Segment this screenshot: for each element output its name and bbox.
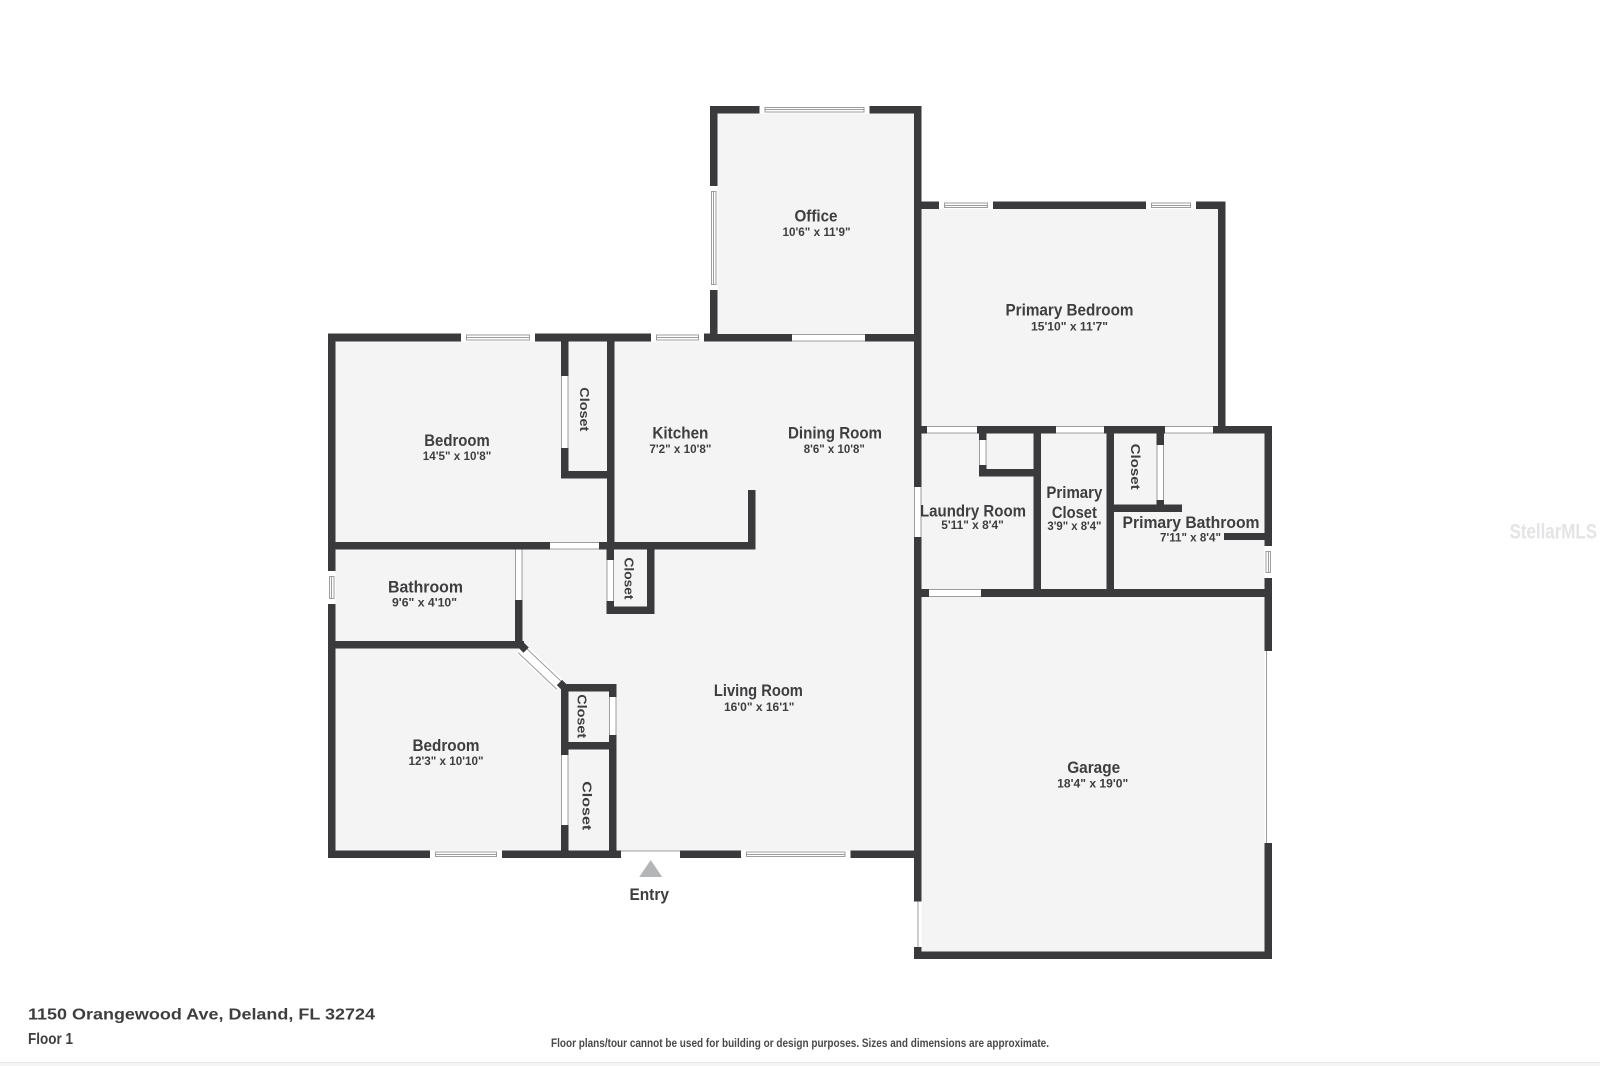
svg-text:14'5" x 10'8": 14'5" x 10'8" — [423, 449, 492, 463]
svg-text:Entry: Entry — [629, 885, 669, 904]
svg-text:1150 Orangewood Ave, Deland, F: 1150 Orangewood Ave, Deland, FL 32724 — [28, 1007, 375, 1024]
svg-text:9'6" x 4'10": 9'6" x 4'10" — [392, 595, 457, 609]
svg-text:3'9" x 8'4": 3'9" x 8'4" — [1047, 519, 1101, 533]
svg-text:Floor 1: Floor 1 — [28, 1031, 73, 1048]
svg-text:7'2" x 10'8": 7'2" x 10'8" — [649, 442, 711, 456]
svg-text:10'6" x 11'9": 10'6" x 11'9" — [783, 225, 851, 239]
svg-text:Kitchen: Kitchen — [652, 424, 708, 443]
svg-text:Primary: Primary — [1046, 483, 1102, 502]
svg-text:16'0" x 16'1": 16'0" x 16'1" — [724, 700, 795, 714]
svg-text:Primary Bedroom: Primary Bedroom — [1006, 301, 1134, 320]
svg-text:Dining Room: Dining Room — [788, 424, 882, 443]
svg-text:15'10" x 11'7": 15'10" x 11'7" — [1031, 320, 1108, 334]
svg-text:Primary Bathroom: Primary Bathroom — [1123, 513, 1260, 532]
svg-text:Bedroom: Bedroom — [424, 431, 490, 450]
svg-text:Floor plans/tour cannot be use: Floor plans/tour cannot be used for buil… — [551, 1038, 1049, 1050]
svg-text:12'3" x 10'10": 12'3" x 10'10" — [409, 754, 484, 768]
svg-text:Bedroom: Bedroom — [413, 736, 480, 755]
svg-text:Office: Office — [795, 206, 838, 225]
svg-text:StellarMLS: StellarMLS — [1510, 521, 1597, 544]
svg-text:7'11" x 8'4": 7'11" x 8'4" — [1160, 531, 1221, 545]
svg-text:18'4" x 19'0": 18'4" x 19'0" — [1057, 777, 1128, 791]
svg-text:Closet: Closet — [575, 694, 590, 739]
svg-text:5'11" x 8'4": 5'11" x 8'4" — [941, 518, 1004, 532]
svg-text:Living Room: Living Room — [714, 681, 803, 700]
svg-text:Closet: Closet — [577, 387, 592, 432]
svg-text:8'6" x 10'8": 8'6" x 10'8" — [804, 442, 865, 456]
svg-text:Closet: Closet — [1128, 444, 1143, 491]
svg-text:Closet: Closet — [579, 781, 594, 831]
svg-text:Garage: Garage — [1067, 758, 1120, 777]
svg-text:Closet: Closet — [622, 558, 637, 601]
svg-text:Bathroom: Bathroom — [388, 577, 463, 596]
